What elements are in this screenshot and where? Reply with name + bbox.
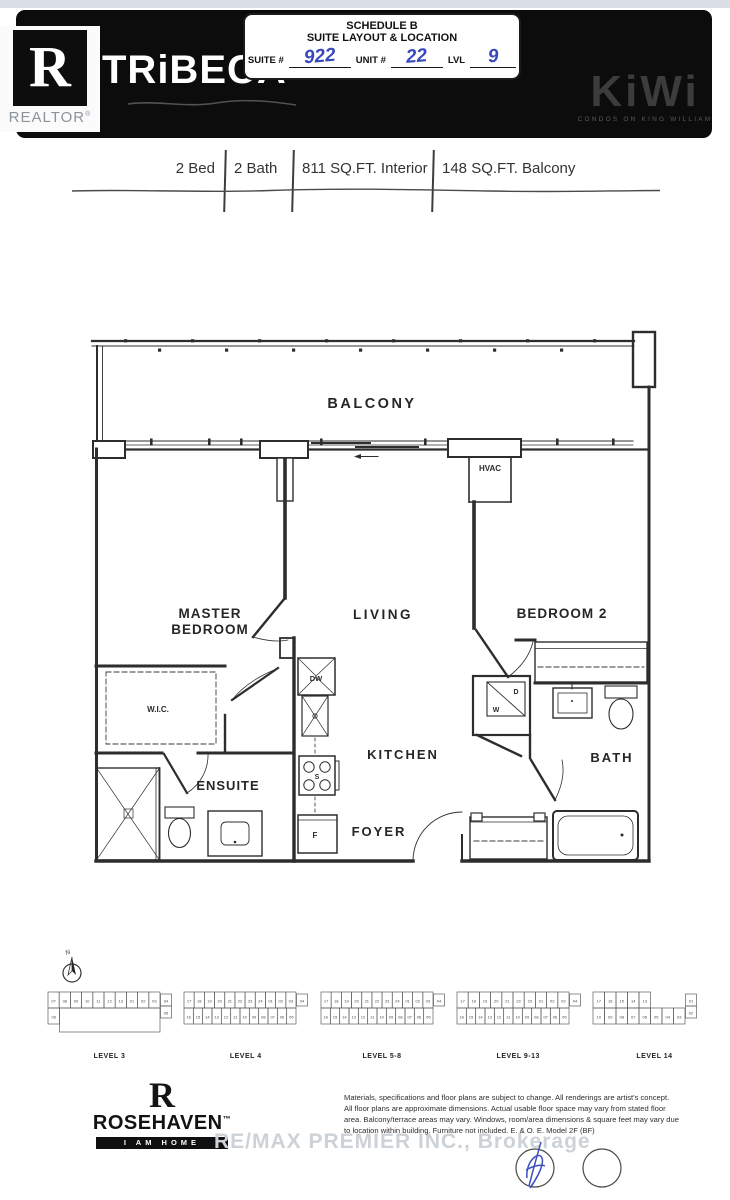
- svg-text:05: 05: [164, 1011, 169, 1016]
- spec-divider: [291, 150, 295, 212]
- lvl-field: 9: [470, 46, 516, 68]
- realtor-word: REALTOR: [9, 109, 85, 126]
- lvl-label: LVL: [448, 55, 465, 68]
- stove-label: S: [315, 774, 320, 781]
- level-4-keyplan: 1718192021222324010203161514131211100908…: [180, 986, 311, 1036]
- svg-text:05: 05: [562, 1015, 567, 1020]
- spec-divider: [223, 150, 227, 212]
- svg-text:02: 02: [141, 999, 146, 1004]
- svg-text:02: 02: [689, 1011, 694, 1016]
- svg-text:22: 22: [516, 999, 521, 1004]
- svg-text:08: 08: [261, 1015, 266, 1020]
- level-5-8-label: LEVEL 5-8: [317, 1053, 448, 1060]
- svg-text:03: 03: [289, 999, 294, 1004]
- svg-text:03: 03: [425, 999, 430, 1004]
- svg-text:15: 15: [332, 1015, 337, 1020]
- wic-label: W.I.C.: [147, 705, 169, 714]
- svg-text:23: 23: [384, 999, 389, 1004]
- svg-text:22: 22: [374, 999, 379, 1004]
- svg-text:17: 17: [187, 999, 192, 1004]
- rosehaven-tm: ™: [223, 1114, 232, 1123]
- spec-baths: 2 Bath: [234, 160, 277, 177]
- svg-text:13: 13: [119, 999, 124, 1004]
- svg-text:23: 23: [527, 999, 532, 1004]
- svg-text:20: 20: [218, 999, 223, 1004]
- svg-text:05: 05: [426, 1015, 431, 1020]
- rosehaven-name: ROSEHAVEN™: [92, 1112, 232, 1135]
- svg-text:04: 04: [300, 999, 305, 1004]
- svg-text:10: 10: [515, 1015, 520, 1020]
- svg-text:01: 01: [405, 999, 410, 1004]
- svg-text:08: 08: [620, 1015, 625, 1020]
- level-3-block: 07080910111213010203060405 LEVEL 3: [44, 986, 175, 1060]
- unit-handwritten-value: 22: [405, 45, 428, 69]
- brand-underline-scribble: [126, 98, 301, 110]
- disclaimer-text: Materials, specifications and floor plan…: [344, 1092, 730, 1136]
- signature-circles: [503, 1136, 643, 1198]
- unit-field: 22: [391, 46, 443, 68]
- compass-north-label: N: [64, 949, 71, 957]
- svg-text:03: 03: [152, 999, 157, 1004]
- svg-text:10: 10: [243, 1015, 248, 1020]
- svg-text:10: 10: [597, 1015, 602, 1020]
- svg-text:15: 15: [469, 1015, 474, 1020]
- kiwi-tagline: CONDOS ON KING WILLIAM: [561, 116, 729, 123]
- rosehaven-r-icon: R: [92, 1078, 232, 1112]
- svg-text:20: 20: [354, 999, 359, 1004]
- svg-text:16: 16: [187, 1015, 192, 1020]
- master-bedroom-label-line2: BEDROOM: [171, 622, 249, 637]
- floor-plan: BALCONY HVAC MASTER BEDROOM LIVING BEDRO…: [88, 330, 660, 875]
- kitchen-label: KITCHEN: [367, 747, 439, 762]
- svg-text:19: 19: [207, 999, 212, 1004]
- svg-text:05: 05: [289, 1015, 294, 1020]
- svg-text:07: 07: [407, 1015, 412, 1020]
- svg-text:22: 22: [238, 999, 243, 1004]
- realtor-reg-mark: ®: [85, 111, 91, 118]
- svg-text:06: 06: [643, 1015, 648, 1020]
- svg-text:12: 12: [107, 999, 112, 1004]
- svg-text:14: 14: [478, 1015, 483, 1020]
- svg-text:18: 18: [197, 999, 202, 1004]
- svg-text:16: 16: [459, 1015, 464, 1020]
- svg-text:13: 13: [351, 1015, 356, 1020]
- svg-text:17: 17: [597, 999, 602, 1004]
- schedule-subtitle: SUITE LAYOUT & LOCATION: [245, 32, 519, 44]
- level-9-13-keyplan: 1718192021222301020316151413121110090807…: [453, 986, 584, 1036]
- svg-text:11: 11: [506, 1015, 511, 1020]
- svg-text:04: 04: [436, 999, 441, 1004]
- realtor-r-icon: R: [13, 30, 87, 106]
- floorplan-sheet: KiWi CONDOS ON KING WILLIAM TRiBECA R RE…: [0, 0, 730, 1200]
- svg-text:06: 06: [416, 1015, 421, 1020]
- svg-text:02: 02: [550, 999, 555, 1004]
- svg-text:06: 06: [553, 1015, 558, 1020]
- svg-text:16: 16: [323, 1015, 328, 1020]
- svg-text:10: 10: [379, 1015, 384, 1020]
- svg-text:04: 04: [666, 1015, 671, 1020]
- svg-text:07: 07: [631, 1015, 636, 1020]
- svg-text:06: 06: [280, 1015, 285, 1020]
- hvac-label: HVAC: [479, 464, 501, 473]
- svg-text:14: 14: [342, 1015, 347, 1020]
- disclaimer-line: Materials, specifications and floor plan…: [344, 1092, 730, 1103]
- kiwi-name: KiWi: [561, 70, 729, 114]
- balcony-label: BALCONY: [327, 396, 416, 412]
- level-3-keyplan: 07080910111213010203060405: [44, 986, 175, 1036]
- dishwasher-label: DW: [310, 674, 323, 683]
- spec-balcony-area: 148 SQ.FT. Balcony: [442, 160, 575, 177]
- scan-edge-strip: [0, 0, 730, 8]
- rosehaven-tagline: I AM HOME: [96, 1137, 228, 1149]
- svg-text:24: 24: [395, 999, 400, 1004]
- suite-field: 922: [289, 46, 351, 68]
- svg-text:09: 09: [252, 1015, 257, 1020]
- svg-text:14: 14: [205, 1015, 210, 1020]
- lvl-handwritten-value: 9: [487, 46, 499, 69]
- rosehaven-logo: R ROSEHAVEN™ I AM HOME: [92, 1078, 232, 1149]
- svg-text:13: 13: [643, 999, 648, 1004]
- bath-label: BATH: [590, 750, 633, 765]
- svg-text:09: 09: [608, 1015, 613, 1020]
- level-4-block: 1718192021222324010203161514131211100908…: [180, 986, 311, 1060]
- svg-text:12: 12: [497, 1015, 502, 1020]
- svg-text:07: 07: [543, 1015, 548, 1020]
- svg-text:13: 13: [487, 1015, 492, 1020]
- level-9-13-label: LEVEL 9-13: [453, 1053, 584, 1060]
- svg-text:19: 19: [344, 999, 349, 1004]
- level-5-8-block: 1718192021222324010203161514131211100908…: [317, 986, 448, 1060]
- realtor-logo: R REALTOR®: [0, 26, 100, 132]
- svg-text:08: 08: [63, 999, 68, 1004]
- svg-text:01: 01: [539, 999, 544, 1004]
- svg-text:23: 23: [248, 999, 253, 1004]
- level-5-8-keyplan: 1718192021222324010203161514131211100908…: [317, 986, 448, 1036]
- svg-text:12: 12: [224, 1015, 229, 1020]
- disclaimer-line: area. Balcony/terrace areas may vary. Wi…: [344, 1114, 730, 1125]
- svg-text:09: 09: [388, 1015, 393, 1020]
- level-keyplans: 07080910111213010203060405 LEVEL 3 17181…: [44, 986, 720, 1060]
- realtor-label: REALTOR®: [0, 109, 100, 126]
- level-9-13-block: 1718192021222301020316151413121110090807…: [453, 986, 584, 1060]
- washer-label: W: [493, 707, 500, 714]
- svg-text:09: 09: [525, 1015, 530, 1020]
- svg-text:02: 02: [415, 999, 420, 1004]
- spec-underline: [70, 184, 662, 198]
- svg-text:11: 11: [96, 999, 101, 1004]
- svg-text:10: 10: [85, 999, 90, 1004]
- svg-text:01: 01: [269, 999, 274, 1004]
- foyer-label: FOYER: [352, 824, 407, 839]
- living-label: LIVING: [353, 607, 413, 622]
- suite-handwritten-value: 922: [303, 45, 336, 70]
- svg-text:18: 18: [334, 999, 339, 1004]
- fridge-label: F: [313, 831, 318, 840]
- svg-text:07: 07: [51, 999, 56, 1004]
- svg-text:09: 09: [74, 999, 79, 1004]
- svg-text:21: 21: [505, 999, 510, 1004]
- svg-text:01: 01: [130, 999, 135, 1004]
- svg-text:04: 04: [573, 999, 578, 1004]
- svg-text:05: 05: [654, 1015, 659, 1020]
- compass-icon: N: [55, 946, 89, 988]
- unit-label: UNIT #: [356, 55, 386, 68]
- rosehaven-word: ROSEHAVEN: [93, 1112, 223, 1134]
- window-mullions: [150, 439, 615, 446]
- svg-text:17: 17: [460, 999, 465, 1004]
- svg-text:15: 15: [620, 999, 625, 1004]
- spec-interior-area: 811 SQ.FT. Interior: [302, 160, 428, 177]
- svg-text:12: 12: [360, 1015, 365, 1020]
- svg-text:15: 15: [196, 1015, 201, 1020]
- schedule-title: SCHEDULE B: [245, 20, 519, 32]
- svg-text:03: 03: [677, 1015, 682, 1020]
- svg-text:21: 21: [364, 999, 369, 1004]
- svg-text:13: 13: [215, 1015, 220, 1020]
- svg-text:18: 18: [471, 999, 476, 1004]
- svg-text:08: 08: [398, 1015, 403, 1020]
- spec-beds: 2 Bed: [160, 160, 215, 177]
- svg-text:17: 17: [323, 999, 328, 1004]
- schedule-box: SCHEDULE B SUITE LAYOUT & LOCATION SUITE…: [243, 13, 521, 80]
- dryer-label: D: [513, 689, 518, 696]
- level-14-label: LEVEL 14: [589, 1053, 720, 1060]
- svg-text:11: 11: [234, 1015, 239, 1020]
- svg-text:01: 01: [689, 999, 694, 1004]
- disclaimer-line: to location within building. Furniture n…: [344, 1125, 730, 1136]
- ensuite-label: ENSUITE: [196, 778, 259, 793]
- svg-text:14: 14: [631, 999, 636, 1004]
- svg-text:20: 20: [494, 999, 499, 1004]
- svg-text:04: 04: [164, 999, 169, 1004]
- spec-divider: [431, 150, 435, 212]
- suite-label: SUITE #: [248, 55, 284, 68]
- svg-text:24: 24: [258, 999, 263, 1004]
- svg-text:02: 02: [279, 999, 284, 1004]
- bedroom2-label: BEDROOM 2: [517, 606, 608, 621]
- master-bedroom-label-line1: MASTER: [179, 606, 242, 621]
- initial-circle-empty: [583, 1149, 621, 1187]
- svg-text:11: 11: [370, 1015, 375, 1020]
- svg-text:21: 21: [228, 999, 233, 1004]
- suite-info-row: SUITE # 922 UNIT # 22 LVL 9: [245, 46, 519, 68]
- svg-text:19: 19: [483, 999, 488, 1004]
- svg-text:06: 06: [52, 1015, 57, 1020]
- level-4-label: LEVEL 4: [180, 1053, 311, 1060]
- level-3-label: LEVEL 3: [44, 1053, 175, 1060]
- kiwi-logo: KiWi CONDOS ON KING WILLIAM: [561, 70, 729, 123]
- svg-text:07: 07: [271, 1015, 276, 1020]
- svg-text:08: 08: [534, 1015, 539, 1020]
- svg-text:16: 16: [608, 999, 613, 1004]
- svg-text:03: 03: [561, 999, 566, 1004]
- level-14-keyplan: 171615141310090807060504030102: [589, 986, 720, 1036]
- level-14-block: 171615141310090807060504030102 LEVEL 14: [589, 986, 720, 1060]
- disclaimer-line: All floor plans are approximate dimensio…: [344, 1103, 730, 1114]
